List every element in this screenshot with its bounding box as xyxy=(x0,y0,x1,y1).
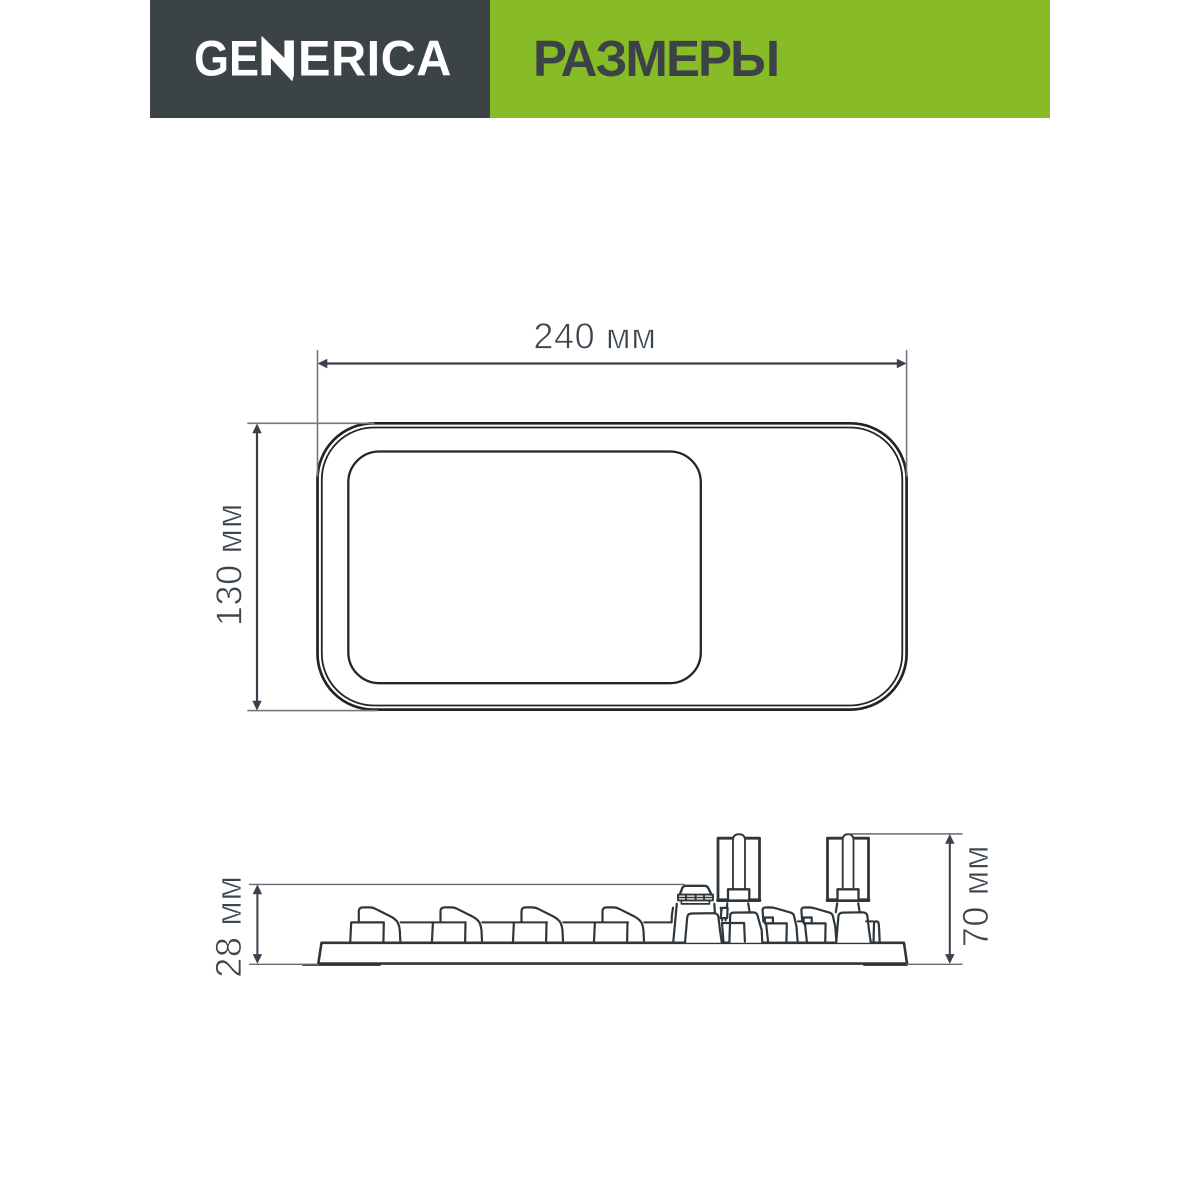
svg-text:GE: GE xyxy=(194,31,259,87)
svg-text:28 мм: 28 мм xyxy=(208,875,249,978)
svg-text:130 мм: 130 мм xyxy=(209,503,250,626)
svg-text:ERICA: ERICA xyxy=(298,31,452,87)
svg-text:240 мм: 240 мм xyxy=(533,316,656,357)
svg-text:70 мм: 70 мм xyxy=(955,845,996,948)
svg-text:РАЗМЕРЫ: РАЗМЕРЫ xyxy=(533,30,780,87)
